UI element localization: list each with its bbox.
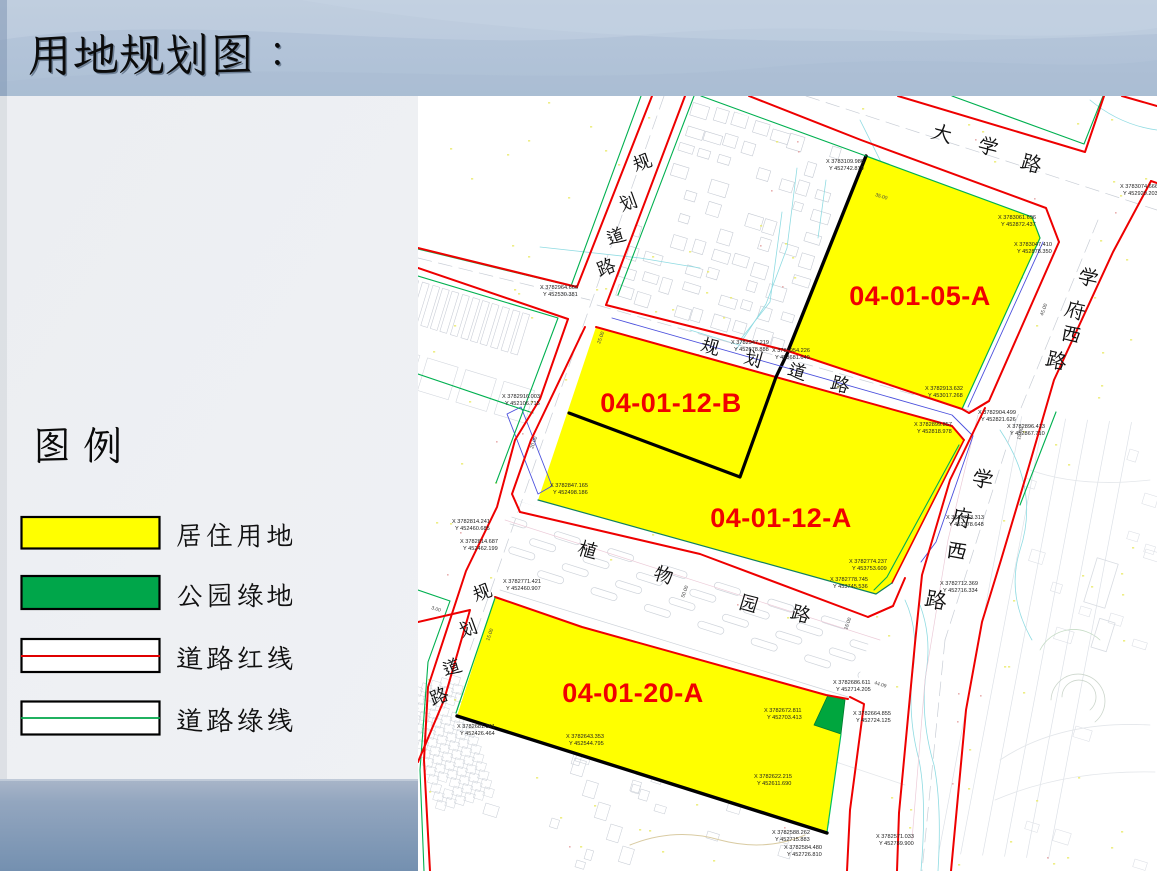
svg-text:X 3782643.353: X 3782643.353 (566, 734, 604, 740)
svg-text:X 3782672.811: X 3782672.811 (764, 708, 802, 714)
svg-text:Y 452742.819: Y 452742.819 (829, 166, 864, 172)
svg-text:Y 452460.907: Y 452460.907 (506, 586, 541, 592)
svg-text:Y 452715.883: Y 452715.883 (775, 837, 810, 843)
svg-text:X 3782664.855: X 3782664.855 (853, 711, 891, 717)
svg-text:04-01-12-A: 04-01-12-A (710, 503, 852, 533)
svg-text:X 3782899.857: X 3782899.857 (914, 422, 952, 428)
svg-text:X 3782686.611: X 3782686.611 (833, 680, 871, 686)
svg-text:X 3782778.745: X 3782778.745 (830, 577, 868, 583)
svg-text:Y 453017.268: Y 453017.268 (928, 393, 963, 399)
svg-text:Y 452821.626: Y 452821.626 (981, 417, 1016, 423)
svg-text:X 3783109.986: X 3783109.986 (826, 159, 864, 165)
svg-text:Y 452544.795: Y 452544.795 (569, 741, 604, 747)
svg-text:Y 453681.649: Y 453681.649 (775, 355, 810, 361)
svg-text:Y 452460.685: Y 452460.685 (455, 526, 490, 532)
svg-text:Y 452703.413: Y 452703.413 (767, 715, 802, 721)
svg-text:Y 452426.464: Y 452426.464 (460, 731, 495, 737)
svg-text:Y 452789.900: Y 452789.900 (879, 841, 914, 847)
svg-text:Y 452530.381: Y 452530.381 (543, 292, 578, 298)
svg-text:Y 452106.715: Y 452106.715 (505, 401, 540, 407)
svg-text:Y 452498.186: Y 452498.186 (553, 490, 588, 496)
svg-text:X 3783047.410: X 3783047.410 (1014, 242, 1052, 248)
svg-text:Y 452778.648: Y 452778.648 (949, 522, 984, 528)
svg-text:X 3782774.237: X 3782774.237 (849, 559, 887, 565)
svg-text:Y 452716.334: Y 452716.334 (943, 588, 978, 594)
svg-text:04-01-12-B: 04-01-12-B (600, 388, 742, 418)
svg-text:04-01-20-A: 04-01-20-A (562, 678, 704, 708)
svg-text:Y 453753.609: Y 453753.609 (852, 566, 887, 572)
svg-text:Y 452878.350: Y 452878.350 (1017, 249, 1052, 255)
svg-text:Y 452611.690: Y 452611.690 (757, 781, 791, 787)
svg-text:X 3782814.687: X 3782814.687 (460, 539, 498, 545)
svg-text:X 3782947.219: X 3782947.219 (731, 340, 769, 346)
svg-text:X 3782681.341: X 3782681.341 (457, 724, 495, 730)
svg-text:Y 452867.710: Y 452867.710 (1010, 431, 1045, 437)
svg-text:X 3782916.003: X 3782916.003 (502, 394, 540, 400)
svg-text:Y 452714.205: Y 452714.205 (836, 687, 871, 693)
svg-text:Y 452929.203: Y 452929.203 (1123, 191, 1157, 197)
svg-text:X 3782622.215: X 3782622.215 (754, 774, 792, 780)
svg-text:Y 453745.536: Y 453745.536 (833, 584, 868, 590)
svg-text:X 3782712.369: X 3782712.369 (940, 581, 978, 587)
svg-text:Y 452678.888: Y 452678.888 (734, 347, 769, 353)
svg-text:X 3782896.413: X 3782896.413 (1007, 424, 1045, 430)
svg-text:X 3782814.241: X 3782814.241 (452, 519, 490, 525)
svg-text:Y 452724.125: Y 452724.125 (856, 718, 891, 724)
svg-text:X 3782763.313: X 3782763.313 (946, 515, 984, 521)
svg-text:X 3782964.666: X 3782964.666 (540, 285, 578, 291)
svg-text:X 3782771.421: X 3782771.421 (503, 579, 541, 585)
svg-text:X 3782954.226: X 3782954.226 (772, 348, 810, 354)
svg-text:Y 452726.810: Y 452726.810 (787, 852, 822, 858)
svg-text:X 3782571.033: X 3782571.033 (876, 834, 914, 840)
svg-text:X 3783074.666: X 3783074.666 (1120, 184, 1157, 190)
svg-text:X 3782904.499: X 3782904.499 (978, 410, 1016, 416)
svg-text:X 3783061.696: X 3783061.696 (998, 215, 1036, 221)
svg-text:Y 452818.978: Y 452818.978 (917, 429, 952, 435)
svg-text:X 3782847.165: X 3782847.165 (550, 483, 588, 489)
svg-text:04-01-05-A: 04-01-05-A (849, 281, 991, 311)
svg-text:X 3782913.632: X 3782913.632 (925, 386, 963, 392)
svg-text:X 3782584.480: X 3782584.480 (784, 845, 822, 851)
svg-text:X 3782588.262: X 3782588.262 (772, 830, 810, 836)
svg-text:Y 452462.199: Y 452462.199 (463, 546, 498, 552)
svg-text:Y 452872.437: Y 452872.437 (1001, 222, 1036, 228)
